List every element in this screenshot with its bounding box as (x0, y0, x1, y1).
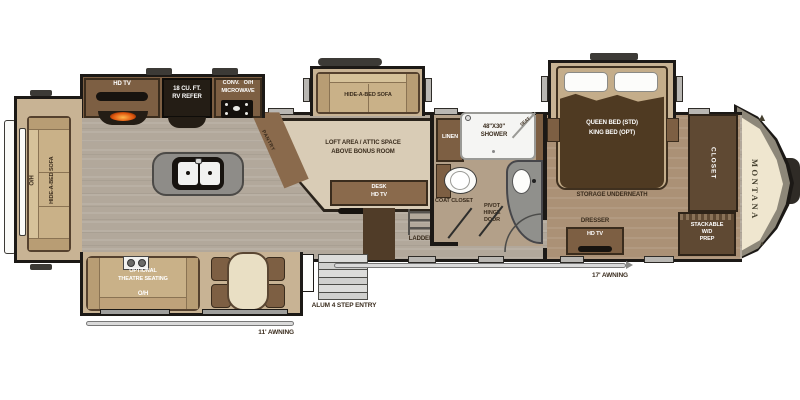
bed-label-line2: KING BED (OPT) (558, 130, 666, 137)
vanity-sink (512, 169, 531, 194)
entry-door (302, 254, 314, 292)
bottom-wall-window (478, 256, 504, 263)
slideout-side-tab (303, 78, 310, 102)
loft-label-line1: LOFT AREA / ATTIC SPACE (296, 140, 430, 147)
theatre-label-line1: OPTIONAL (100, 268, 186, 274)
floorplan-canvas: ▲ MONTANA ▲ LOFT AREA / ATTIC SPACE ABOV… (0, 0, 800, 400)
shower-drain-icon (492, 150, 495, 153)
desk-label: DESK (330, 184, 428, 190)
coat-closet-label: COAT CLOSET (428, 198, 480, 204)
cupholder-icon (127, 259, 135, 267)
entry-steps-label: ALUM 4 STEP ENTRY (298, 302, 390, 309)
theatre-label-line2: THEATRE SEATING (100, 276, 186, 282)
wd-label-line1: STACKABLE (678, 222, 736, 228)
mid-sofa-back (330, 74, 406, 83)
slideout-side-tab (541, 76, 548, 102)
pillow (564, 72, 608, 92)
rear-overhead-label: O/H (30, 165, 37, 195)
dresser-label: DRESSER (562, 218, 628, 225)
slideout-side-tab (676, 76, 683, 102)
slideout-handle (30, 264, 52, 270)
step (318, 285, 368, 293)
wd-label-line3: PREP (678, 236, 736, 242)
fireplace-flame-icon (110, 112, 136, 121)
bathroom-wall-bottom (430, 242, 458, 246)
bonus-room-wall (363, 208, 395, 260)
washer-dryer-hatch (680, 214, 734, 220)
bottom-wall-window (560, 256, 584, 263)
burner-icon (245, 103, 248, 106)
bed-blanket (560, 92, 664, 188)
microwave-label: MICROWAVE (214, 88, 262, 94)
slideout-handle (212, 68, 238, 75)
stove-center-icon (233, 106, 240, 111)
wd-label-line2: W/D (678, 229, 736, 235)
rear-sofa-label: HIDE-A-BED SOFA (49, 140, 55, 220)
top-wall-window (434, 108, 458, 115)
pillow (614, 72, 658, 92)
bottom-wall-window (408, 256, 436, 263)
shower-size-label: 48"X30" (466, 124, 522, 131)
microwave-label-row: CONV. O/H (214, 80, 262, 86)
dinette-table (227, 252, 269, 311)
theatre-arm (186, 258, 198, 309)
awning-arrow-icon (626, 261, 633, 269)
nightstand (547, 118, 560, 142)
vanity-faucet-icon (532, 179, 536, 183)
theatre-arm (88, 258, 100, 309)
mountain-logo-small-icon: ▲ (755, 240, 769, 248)
ladder-rungs (410, 211, 431, 233)
showerhead-icon (465, 115, 471, 121)
dresser-tv-label: HD TV (566, 231, 624, 237)
conv-label: CONV. (223, 80, 240, 86)
faucet-icon (195, 158, 202, 164)
dresser-tv-icon (578, 246, 612, 252)
pivot-door-label-line1: PIVOT (474, 203, 510, 209)
rear-sofa-arm (29, 118, 69, 130)
slideout-window (202, 309, 288, 315)
storage-underneath-label: STORAGE UNDERNEATH (545, 192, 679, 199)
mountain-logo-icon: ▲ (749, 110, 775, 126)
bathroom-wall-left (430, 112, 434, 246)
main-awning-bar (334, 263, 626, 268)
refer-label-line1: 18 CU. FT. (162, 86, 212, 93)
bedroom-wall-lower (543, 248, 547, 262)
closet-label: CLOSET (710, 116, 717, 210)
slideout-handle (590, 53, 638, 60)
main-awning-label: 17' AWNING (562, 272, 628, 279)
slideout-handle (318, 58, 382, 66)
bedroom-door-arc (503, 212, 545, 254)
step (318, 270, 368, 278)
step (318, 293, 368, 301)
rear-awning-label: 11' AWNING (222, 329, 294, 336)
step (318, 254, 368, 263)
brand-name: MONTANA (750, 144, 760, 236)
refer-label-line2: RV REFER (162, 94, 212, 101)
shower-label: SHOWER (466, 132, 522, 139)
burner-icon (225, 103, 228, 106)
toilet-bowl (450, 171, 470, 190)
slideout-window (100, 309, 170, 315)
kitchen-tv-label: HD TV (84, 81, 160, 88)
rear-awning-bar (86, 321, 294, 326)
loft-label-line2: ABOVE BONUS ROOM (296, 149, 430, 156)
burner-icon (245, 112, 248, 115)
burner-icon (225, 112, 228, 115)
entry-steps (318, 254, 368, 300)
sink-drain-icon (186, 171, 190, 175)
theatre-overhead-label: O/H (128, 291, 158, 298)
rear-window (19, 128, 26, 236)
microwave-oh-label: O/H (244, 80, 254, 86)
slideout-handle (146, 68, 172, 75)
bed-label-line1: QUEEN BED (STD) (558, 120, 666, 127)
desk-tv-label: HD TV (330, 192, 428, 198)
refrigerator-door (168, 117, 206, 128)
rear-sofa-arm (29, 238, 69, 250)
mid-sofa-label: HIDE-A-BED SOFA (318, 92, 418, 98)
theatre-back (100, 297, 186, 309)
tv-icon (96, 92, 148, 101)
sink-drain-icon (208, 171, 212, 175)
cupholder-icon (138, 259, 146, 267)
front-closet: CLOSET (688, 114, 738, 212)
nightstand (666, 118, 679, 142)
slideout-side-tab (425, 78, 432, 102)
slideout-handle (30, 90, 52, 96)
brand-wordmark: MONTANA (746, 144, 764, 236)
bottom-wall-window (644, 256, 674, 263)
step (318, 278, 368, 286)
